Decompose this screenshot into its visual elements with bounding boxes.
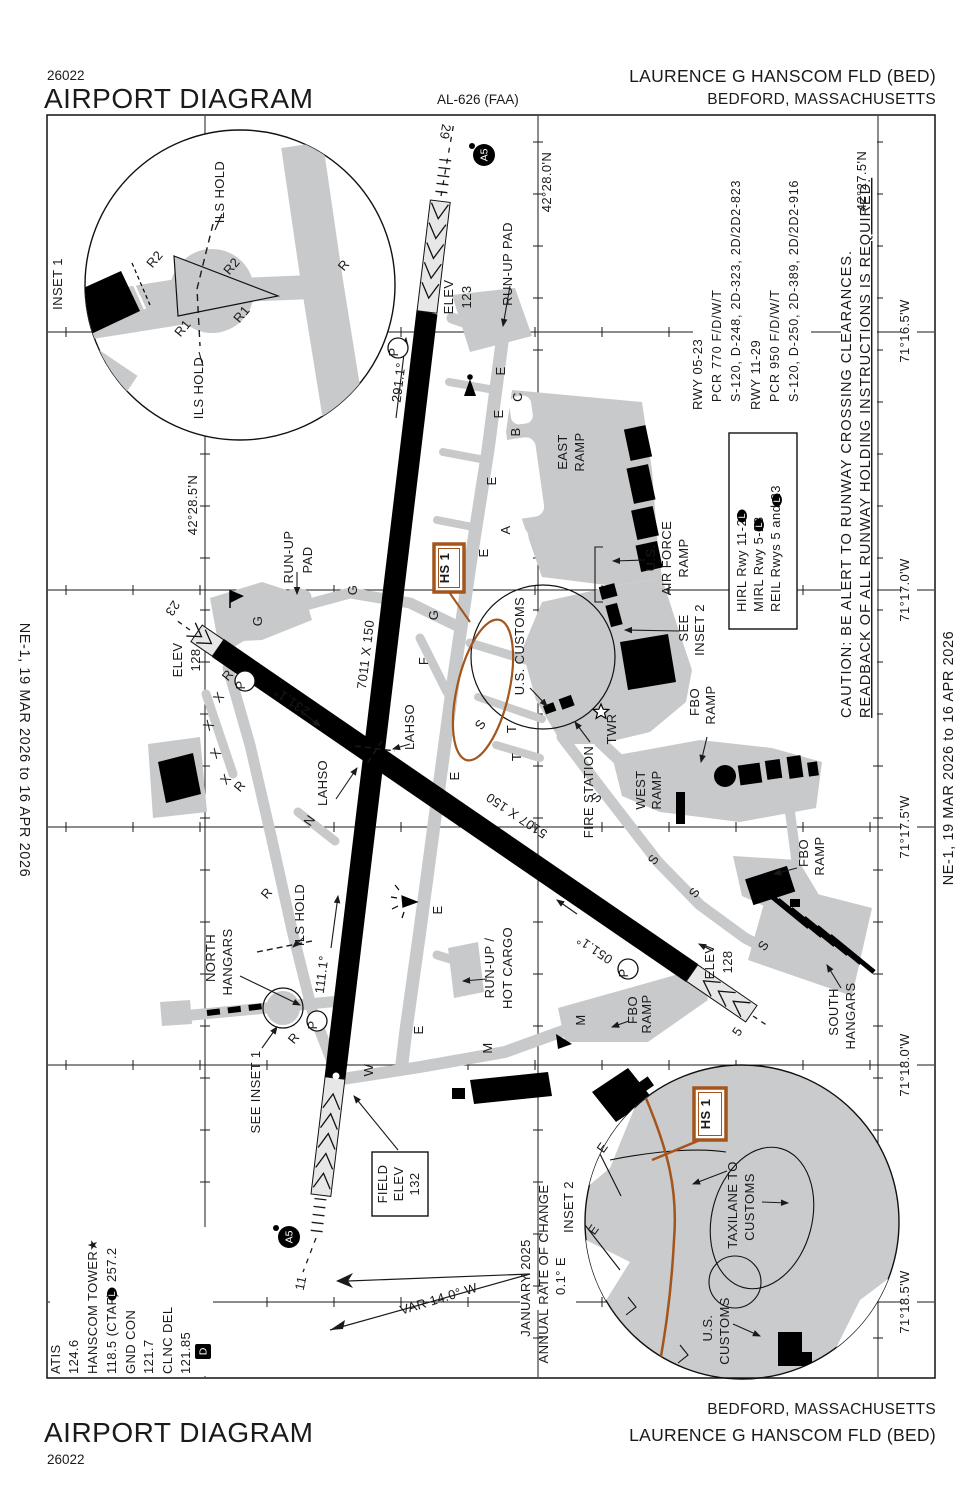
fbo-ramp-label: RAMP: [703, 685, 718, 724]
edition-note-right: NE-1, 19 MAR 2026 to 16 APR 2026: [941, 631, 957, 886]
north-hangars-label: NORTH: [203, 934, 218, 982]
taxiway-label-c: C: [510, 392, 525, 402]
taxiway-label-e: E: [491, 409, 506, 418]
gnd-freq: 121.7: [141, 1339, 156, 1374]
hotspot-hs1-label: HS 1: [437, 553, 452, 584]
runway-11-number: 11: [292, 1275, 310, 1292]
taxiway-label-b: B: [508, 427, 523, 436]
a5-badge-text: A5: [479, 148, 491, 161]
clnc-freq: 121.85: [178, 1332, 193, 1374]
field-elev-label: ELEV: [391, 1167, 406, 1202]
fbo-ramp-label: RAMP: [812, 836, 827, 875]
south-hangars-label: HANGARS: [843, 982, 858, 1049]
us-air-force-ramp-label: RAMP: [676, 538, 691, 577]
airport-city-top: BEDFORD, MASSACHUSETTS: [707, 91, 936, 108]
tower-freq: 118.5 (CTAF): [104, 1292, 119, 1374]
west-ramp-label: RAMP: [649, 770, 664, 809]
lighting-box: HIRL Rwy 11-29 MIRL Rwy 5-23 REIL Rwys 5…: [729, 433, 797, 629]
taxiway-label-m: M: [480, 1042, 495, 1053]
lon-label: 71°18.0'W: [897, 1033, 912, 1097]
elev-128-label: ELEV: [170, 643, 185, 678]
lighting-hirl: HIRL Rwy 11-29: [734, 511, 749, 612]
lon-label: 71°17.5'W: [897, 795, 912, 859]
elev-128-value: 128: [720, 951, 735, 974]
runway-29-number: 29: [437, 123, 454, 141]
taxiway-label-e: E: [476, 548, 491, 557]
field-elev-value: 132: [407, 1173, 422, 1196]
us-air-force-ramp-label: U.S.: [643, 545, 658, 572]
inset2-title: INSET 2: [561, 1181, 576, 1233]
fbo-ramp-label: FBO: [796, 839, 811, 867]
d-badge-text: D: [198, 1347, 210, 1355]
east-ramp-label: RAMP: [572, 432, 587, 471]
lat-label: 42°28.0'N: [539, 152, 554, 212]
parking-p: P: [305, 1020, 320, 1029]
see-inset2-label: INSET 2: [692, 604, 707, 656]
taxiway-label-w: W: [361, 1063, 376, 1076]
variation-rate: 0.1° E: [553, 1257, 568, 1295]
taxiway-label-e: E: [484, 476, 499, 485]
inset1-title: INSET 1: [50, 258, 65, 310]
tower-label: HANSCOM TOWER★: [85, 1239, 100, 1374]
taxiway-label-t: T: [504, 725, 519, 733]
runup-pad-label: RUN-UP: [281, 531, 296, 584]
east-ramp-label: EAST: [555, 434, 570, 470]
rwy-1129-strength: S-120, D-250, 2D-389, 2D/2D2-916: [787, 180, 801, 402]
lon-label: 71°17.0'W: [897, 558, 912, 622]
lon-label: 71°18.5'W: [897, 1270, 912, 1334]
field-elev-label: FIELD: [375, 1165, 390, 1204]
caution-line1: CAUTION: BE ALERT TO RUNWAY CROSSING CLE…: [839, 250, 855, 718]
parking-p: P: [386, 347, 401, 356]
runway-end-dot: [333, 1073, 340, 1080]
elev-123-value: 123: [459, 286, 474, 309]
elev-123-label: ELEV: [441, 280, 456, 315]
taxiway-label-e: E: [493, 366, 508, 375]
lahso-label: LAHSO: [402, 704, 417, 750]
fbo-ramp-label: FBO: [687, 688, 702, 716]
a5-badge-text: A5: [284, 1230, 296, 1243]
taxilane-customs-label: TAXILANE TO: [725, 1161, 740, 1249]
edition-note-left: NE-1, 19 MAR 2026 to 16 APR 2026: [16, 623, 32, 878]
runup-pad-label: RUN-UP PAD: [500, 222, 515, 306]
airport-name-top: LAURENCE G HANSCOM FLD (BED): [629, 66, 936, 86]
lat-label: 42°27.5'N: [854, 151, 869, 211]
inset2-customs-building: [778, 1332, 802, 1366]
ils-hold-label: ILS HOLD: [292, 884, 307, 946]
us-air-force-ramp-label: AIR FORCE: [659, 521, 674, 595]
taxiway-label-g: G: [250, 616, 265, 627]
runup-hot-cargo-label: RUN-UP /: [482, 938, 497, 999]
gnd-label: GND CON: [123, 1310, 138, 1374]
chart-number-bottom: 26022: [47, 1452, 85, 1467]
page-title-bottom: AIRPORT DIAGRAM: [44, 1417, 313, 1448]
see-inset1-label: SEE INSET 1: [248, 1051, 263, 1134]
elev-128-value: 128: [188, 649, 203, 672]
taxiway-label-e: E: [447, 771, 462, 780]
rwy-1129-name: RWY 11-29: [748, 340, 763, 410]
lon-label: 71°16.5'W: [897, 299, 912, 363]
taxiway-label-f: F: [416, 657, 431, 665]
parking-p: P: [616, 968, 631, 977]
variation-rate-label: ANNUAL RATE OF CHANGE: [536, 1185, 551, 1364]
rwy-0523-strength: S-120, D-248, 2D-323, 2D/2D2-823: [729, 180, 743, 402]
hotspot-hs1-label: HS 1: [698, 1099, 713, 1130]
taxilane-customs-label: CUSTOMS: [742, 1173, 757, 1241]
clnc-label: CLNC DEL: [160, 1307, 175, 1375]
taxiway-label-m: M: [573, 1014, 588, 1025]
elev-128-label: ELEV: [702, 945, 717, 980]
taxiway-label-e: E: [411, 1025, 426, 1034]
see-inset2-label: SEE: [676, 614, 691, 641]
fbo-ramp-label: RAMP: [639, 994, 654, 1033]
airport-diagram-page: A5 A5: [0, 0, 978, 1500]
us-customs-label: U.S.: [700, 1315, 715, 1342]
parking-p: P: [233, 680, 248, 689]
caution-line2: READBACK OF ALL RUNWAY HOLDING INSTRUCTI…: [858, 178, 874, 718]
atis-label: ATIS: [48, 1344, 63, 1374]
taxiway-label-t: T: [509, 753, 524, 761]
lat-label: 42°28.5'N: [185, 475, 200, 535]
runup-pad-label: PAD: [300, 547, 315, 574]
us-customs-label: CUSTOMS: [717, 1297, 732, 1365]
fire-station-label: FIRE STATION: [581, 746, 596, 838]
l-badge-text: L: [772, 497, 782, 502]
rwy-0523-name: RWY 05-23: [690, 339, 705, 410]
rwy-0523-pcr: PCR 770 F/D/W/T: [710, 289, 724, 402]
north-hangars-label: HANGARS: [220, 928, 235, 995]
al-number: AL-626 (FAA): [437, 92, 519, 107]
l-badge-text: L: [737, 513, 747, 518]
airport-city-bottom: BEDFORD, MASSACHUSETTS: [707, 1401, 936, 1418]
rwy-1129-pcr: PCR 950 F/D/W/T: [768, 289, 782, 402]
atis-freq: 124.6: [66, 1339, 81, 1374]
lahso-label: LAHSO: [315, 760, 330, 806]
airport-diagram-chart: A5 A5: [0, 0, 978, 1500]
variation-date: JANUARY 2025: [518, 1239, 533, 1337]
runup-hot-cargo-label: HOT CARGO: [500, 927, 515, 1009]
l-badge-text: L: [107, 1291, 117, 1296]
west-ramp-label: WEST: [633, 770, 648, 809]
taxiway-label-g: G: [426, 610, 441, 621]
ils-hold-label: ILS HOLD: [191, 357, 206, 419]
airport-name-bottom: LAURENCE G HANSCOM FLD (BED): [629, 1425, 936, 1445]
chart-number-top: 26022: [47, 68, 85, 83]
tower-freq2: 257.2: [104, 1247, 119, 1282]
taxiway-label-a: A: [498, 525, 513, 534]
l-badge-text: L: [754, 522, 764, 527]
taxiway-label-e: E: [430, 905, 445, 914]
south-hangars-label: SOUTH: [826, 988, 841, 1036]
twr-label: TWR: [604, 714, 619, 745]
us-customs-label: U.S. CUSTOMS: [512, 597, 527, 695]
ils-hold-label: ILS HOLD: [212, 161, 227, 223]
page-title-top: AIRPORT DIAGRAM: [44, 83, 313, 114]
fbo-ramp-label: FBO: [625, 996, 640, 1024]
taxiway-label-g: G: [345, 585, 360, 596]
